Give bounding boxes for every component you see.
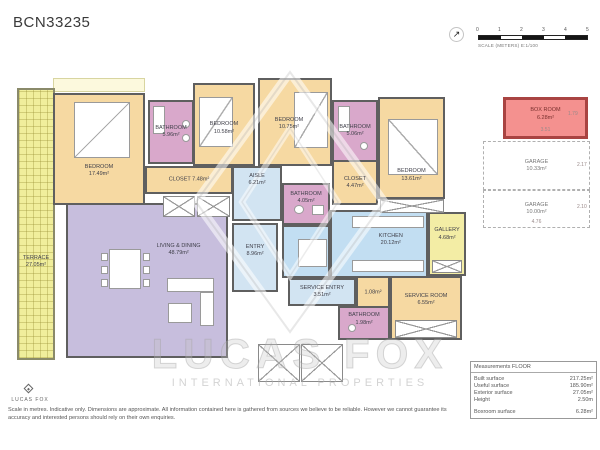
room-label: BEDROOM 17.49m²: [55, 163, 143, 177]
room-bathroom-2: BATHROOM 5.06m²: [332, 100, 378, 162]
dimension-label: 4.76: [483, 219, 590, 225]
room-area: 10.00m²: [526, 209, 546, 215]
room-label: GARAGE 10.33m²: [484, 158, 589, 172]
room-area: 1.08m²: [364, 289, 381, 295]
room-area: 8.96m²: [246, 251, 263, 257]
chair-furniture: [143, 266, 150, 274]
room-aisle: AISLE 6.21m²: [232, 166, 282, 221]
room-bedroom-4: BEDROOM 13.61m²: [378, 97, 445, 199]
brand-watermark-subtext: INTERNATIONAL PROPERTIES: [120, 377, 480, 389]
room-area: 5.96m²: [162, 132, 179, 138]
garage-1: GARAGE 10.33m²: [483, 141, 590, 190]
kitchen-counter-furniture: [352, 216, 424, 228]
bed-furniture: [74, 102, 130, 158]
sofa-furniture: [200, 292, 214, 326]
room-label: BEDROOM 13.61m²: [380, 168, 443, 182]
measurement-value: 27.05m²: [573, 390, 593, 396]
room-name: BEDROOM: [275, 117, 303, 123]
room-bedroom-2: BEDROOM 10.58m²: [193, 83, 255, 166]
room-name: SERVICE ENTRY: [300, 285, 344, 291]
chair-furniture: [101, 253, 108, 261]
room-label: BEDROOM 10.75m²: [248, 117, 330, 131]
shaft-hatch: [395, 320, 457, 338]
room-area: 4.05m²: [297, 198, 314, 204]
shaft-hatch: [197, 196, 230, 217]
scale-tick: 1: [498, 27, 501, 33]
kitchen-table-furniture: [298, 239, 327, 267]
room-area: 10.75m²: [279, 124, 299, 130]
room-label: GARAGE 10.00m²: [484, 202, 589, 216]
measurement-value: 2.50m: [578, 397, 593, 403]
room-name: BEDROOM: [210, 121, 238, 127]
page-title: BCN33235: [13, 14, 90, 31]
room-kitchen-extension: [282, 225, 330, 278]
room-name: BEDROOM: [85, 163, 113, 169]
room-name: GARAGE: [525, 158, 549, 164]
room-label: ENTRY 8.96m²: [234, 244, 276, 258]
room-label: BOX ROOM 6.28m²: [506, 107, 585, 121]
floorplan-sheet: BCN33235 ↗ 0 1 2 3 4 5 SCALE (METERS) E:…: [0, 0, 600, 450]
measurement-row: Height 2.50m: [471, 396, 596, 403]
scale-label: SCALE (METERS) E:1/100: [478, 43, 538, 48]
disclaimer-text: Scale in metres. Indicative only. Dimens…: [8, 407, 460, 422]
chair-furniture: [101, 266, 108, 274]
bed-furniture: [388, 119, 438, 175]
measurement-label: Height: [474, 397, 490, 403]
room-area: 13.61m²: [401, 175, 421, 181]
room-gallery: GALLERY 4.68m²: [428, 212, 466, 276]
shaft-hatch: [432, 260, 462, 273]
room-name: TERRACE: [23, 254, 49, 260]
measurement-value: 185.90m²: [570, 383, 593, 389]
measurement-value: 217.25m²: [570, 376, 593, 382]
sink-furniture: [312, 205, 324, 215]
room-area: 6.55m²: [417, 300, 434, 306]
toilet-furniture: [294, 205, 304, 214]
room-bathroom-4: BATHROOM 1.98m²: [338, 306, 390, 340]
room-area: 4.68m²: [438, 234, 455, 240]
scale-tick: 4: [564, 27, 567, 33]
measurement-label: Boxroom surface: [474, 409, 516, 415]
measurement-row: Useful surface 185.90m²: [471, 382, 596, 389]
room-name: BATHROOM: [155, 125, 186, 131]
room-area: 20.12m²: [381, 240, 401, 246]
scale-tick: 5: [586, 27, 589, 33]
chair-furniture: [143, 279, 150, 287]
room-name: ENTRY: [246, 244, 265, 250]
room-area: 6.21m²: [248, 180, 265, 186]
chair-furniture: [101, 279, 108, 287]
brand-name: LUCAS FOX: [8, 397, 52, 403]
scale-tick: 0: [476, 27, 479, 33]
measurements-header: Measurements FLOOR: [471, 362, 596, 373]
room-closet-1: CLOSET 7.48m²: [145, 166, 233, 194]
room-label: TERRACE 27.05m²: [19, 254, 53, 268]
dimension-label: 3.51: [503, 127, 588, 133]
room-kitchen: KITCHEN 20.12m²: [330, 210, 428, 278]
room-area: 27.05m²: [26, 262, 46, 268]
room-area: 10.33m²: [526, 166, 546, 172]
room-area: 6.28m²: [537, 114, 554, 120]
room-service-entry: SERVICE ENTRY 3.51m²: [288, 278, 356, 306]
toilet-furniture: [360, 142, 368, 150]
terrace-upper-strip: [53, 78, 145, 92]
room-name: BATHROOM: [348, 312, 379, 318]
room-name: GALLERY: [434, 227, 459, 233]
north-arrow-icon: ↗: [449, 27, 464, 42]
room-name: AISLE: [249, 173, 265, 179]
scale-tick: 3: [542, 27, 545, 33]
room-living-dining: LIVING & DINING 48.79m²: [66, 203, 228, 358]
room-label: AISLE 6.21m²: [234, 173, 280, 187]
measurement-row: Built surface 217.25m²: [471, 375, 596, 382]
room-name: SERVICE ROOM: [405, 292, 448, 298]
room-area: 7.48m²: [192, 176, 209, 182]
room-area: 17.49m²: [89, 171, 109, 177]
room-name: CLOSET: [169, 176, 191, 182]
room-label: BATHROOM 4.05m²: [284, 191, 328, 205]
shaft-hatch: [163, 196, 195, 217]
room-label: GALLERY 4.68m²: [430, 227, 464, 241]
room-label: CLOSET 4.47m²: [334, 175, 376, 189]
room-bedroom-1: BEDROOM 17.49m²: [53, 93, 145, 205]
room-label: LIVING & DINING 48.79m²: [115, 243, 241, 257]
room-name: BATHROOM: [339, 124, 370, 130]
lucasfox-logo-icon: [24, 384, 34, 394]
room-name: KITCHEN: [379, 233, 403, 239]
room-label: 1.08m²: [358, 289, 388, 296]
room-name: BOX ROOM: [530, 107, 560, 113]
scale-tick: 2: [520, 27, 523, 33]
room-bathroom-1: BATHROOM 5.96m²: [148, 100, 194, 164]
measurements-table: Measurements FLOOR Built surface 217.25m…: [470, 361, 597, 419]
room-area: 48.79m²: [169, 250, 189, 256]
room-closet-2: CLOSET 4.47m²: [332, 160, 378, 205]
room-label: BATHROOM 5.96m²: [150, 125, 192, 139]
kitchen-counter-furniture: [352, 260, 424, 272]
room-name: BATHROOM: [290, 191, 321, 197]
measurement-label: Built surface: [474, 376, 504, 382]
room-name: GARAGE: [525, 202, 549, 208]
room-area: 10.58m²: [214, 128, 234, 134]
sofa-furniture: [167, 278, 214, 292]
room-label: SERVICE ENTRY 3.51m²: [290, 285, 354, 299]
room-name: BEDROOM: [397, 168, 425, 174]
room-label: SERVICE ROOM 6.55m²: [392, 292, 460, 306]
measurement-row: Boxroom surface 6.28m²: [471, 408, 596, 415]
room-bathroom-3: BATHROOM 4.05m²: [282, 183, 330, 225]
room-label: BATHROOM 5.06m²: [334, 124, 376, 138]
measurement-row: Exterior surface 27.05m²: [471, 389, 596, 396]
measurement-label: Exterior surface: [474, 390, 513, 396]
room-area: 3.51m²: [313, 292, 330, 298]
room-label: BEDROOM 10.58m²: [195, 121, 253, 135]
coffee-table-furniture: [168, 303, 192, 323]
measurement-value: 6.28m²: [576, 409, 593, 415]
measurement-label: Useful surface: [474, 383, 509, 389]
stairwell-hatch: [258, 344, 300, 382]
room-name: LIVING & DINING: [157, 243, 201, 249]
room-name: CLOSET: [344, 175, 366, 181]
room-label: BATHROOM 1.98m²: [340, 312, 388, 326]
shaft-hatch: [380, 199, 444, 213]
room-label: CLOSET 7.48m²: [147, 176, 231, 183]
room-label: KITCHEN 20.12m²: [356, 233, 427, 247]
room-entry: ENTRY 8.96m²: [232, 223, 278, 292]
scale-bar: [478, 35, 588, 40]
room-area: 4.47m²: [346, 183, 363, 189]
room-terrace: TERRACE 27.05m²: [17, 88, 55, 360]
stairwell-hatch: [301, 344, 343, 382]
room-small-closet: 1.08m²: [356, 276, 390, 310]
room-bedroom-3: BEDROOM 10.75m²: [258, 78, 332, 166]
room-area: 1.98m²: [355, 319, 372, 325]
room-service-room: SERVICE ROOM 6.55m²: [390, 276, 462, 340]
room-area: 5.06m²: [346, 131, 363, 137]
